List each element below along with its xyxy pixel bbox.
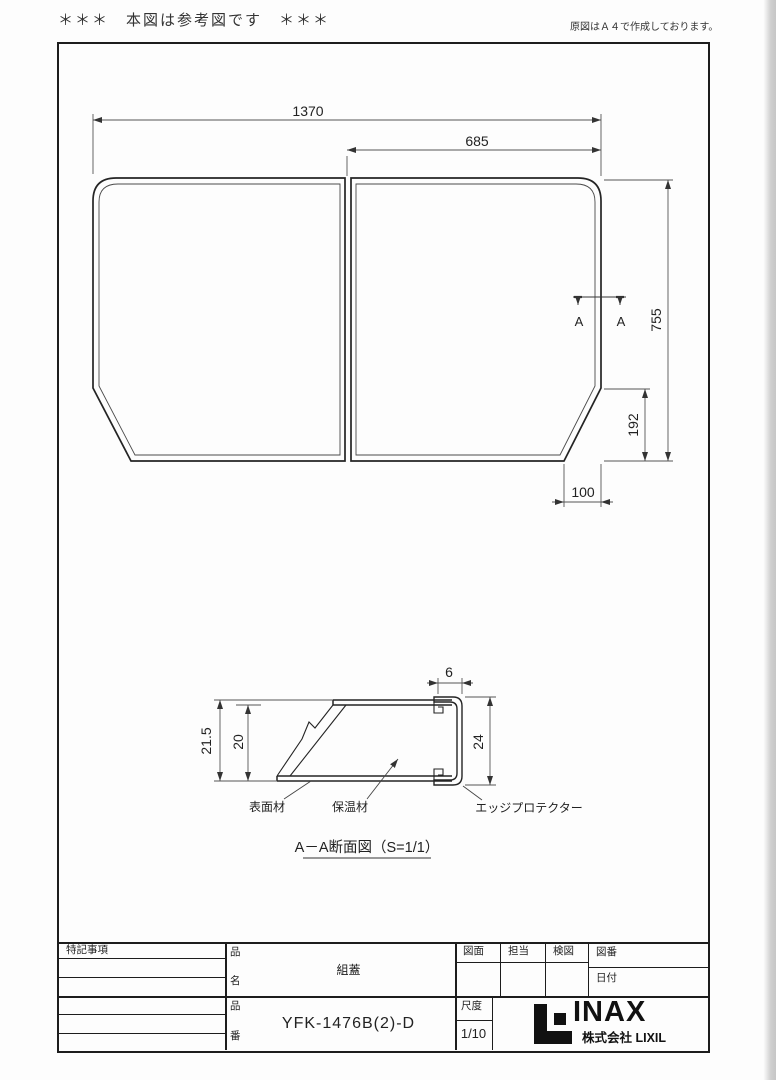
dim-1370-value: 1370	[292, 103, 323, 119]
check-col-divider	[588, 942, 589, 996]
drawing-col-divider	[500, 942, 501, 996]
section-mark-a-right: A	[617, 314, 626, 329]
title-block-top-line	[58, 942, 708, 944]
notes-row-line-1	[58, 958, 225, 959]
drawing-no-label: 図番	[596, 947, 617, 958]
plan-view-outline	[93, 178, 601, 461]
product-name-label-top: 品	[230, 947, 241, 958]
person-stamp-label: 担当	[508, 946, 529, 957]
insulation-material-label: 保温材	[332, 800, 368, 814]
section-panel	[277, 700, 452, 781]
product-name-label-bottom: 名	[230, 976, 241, 987]
dim-6-value: 6	[445, 664, 453, 680]
notes-row-line-4	[58, 1033, 225, 1034]
drawing-stamp-label: 図面	[463, 946, 484, 957]
section-caption: A－A断面図（S=1/1）	[295, 839, 440, 856]
photo-edge-strip	[763, 0, 776, 1080]
dim-192-value: 192	[625, 413, 641, 437]
scale-row-line	[455, 1020, 492, 1021]
date-label: 日付	[596, 973, 617, 984]
dim-100-value: 100	[571, 484, 595, 500]
plan-view-inner-line	[99, 184, 595, 455]
dim-24-value: 24	[470, 734, 486, 750]
lixil-logo-subtext: 株式会社 LIXIL	[582, 1032, 666, 1045]
section-edge-protector	[434, 697, 462, 785]
inax-logo-mark	[534, 1004, 572, 1044]
drawing-no-row-line	[588, 967, 708, 968]
dim-21-5-value: 21.5	[198, 727, 214, 754]
dim-685-value: 685	[465, 133, 489, 149]
notes-row-line-2	[58, 977, 225, 978]
scale-value: 1/10	[455, 1026, 492, 1041]
edge-protector-label: エッジプロテクター	[475, 801, 583, 815]
person-col-divider	[545, 942, 546, 996]
product-name-value: 組蓋	[242, 961, 455, 978]
product-no-label-top: 品	[230, 1001, 241, 1012]
check-stamp-label: 検図	[553, 946, 574, 957]
product-no-value: YFK-1476B(2)-D	[242, 1015, 455, 1033]
dim-685	[347, 150, 601, 176]
special-notes-label: 特記事項	[66, 945, 108, 956]
stamp-header-line	[455, 962, 588, 963]
dim-20-value: 20	[230, 734, 246, 750]
drawing-sheet-page: ＊＊＊ 本図は参考図です ＊＊＊ 原図はＡ４で作成しております。	[0, 0, 776, 1080]
section-cut-marks	[573, 297, 626, 305]
dim-6	[427, 678, 473, 694]
drawing-canvas: 1370 685 A A 755 192	[0, 0, 776, 1080]
scale-label: 尺度	[461, 1001, 482, 1012]
section-mark-a-left: A	[575, 314, 584, 329]
product-no-label-bottom: 番	[230, 1031, 241, 1042]
surface-material-label: 表面材	[249, 800, 285, 814]
scale-col-divider	[492, 996, 493, 1050]
dim-755-value: 755	[648, 308, 664, 332]
notes-col-divider	[225, 942, 227, 1050]
inax-logo-text: INAX	[573, 998, 646, 1027]
notes-row-line-3	[58, 1014, 225, 1015]
